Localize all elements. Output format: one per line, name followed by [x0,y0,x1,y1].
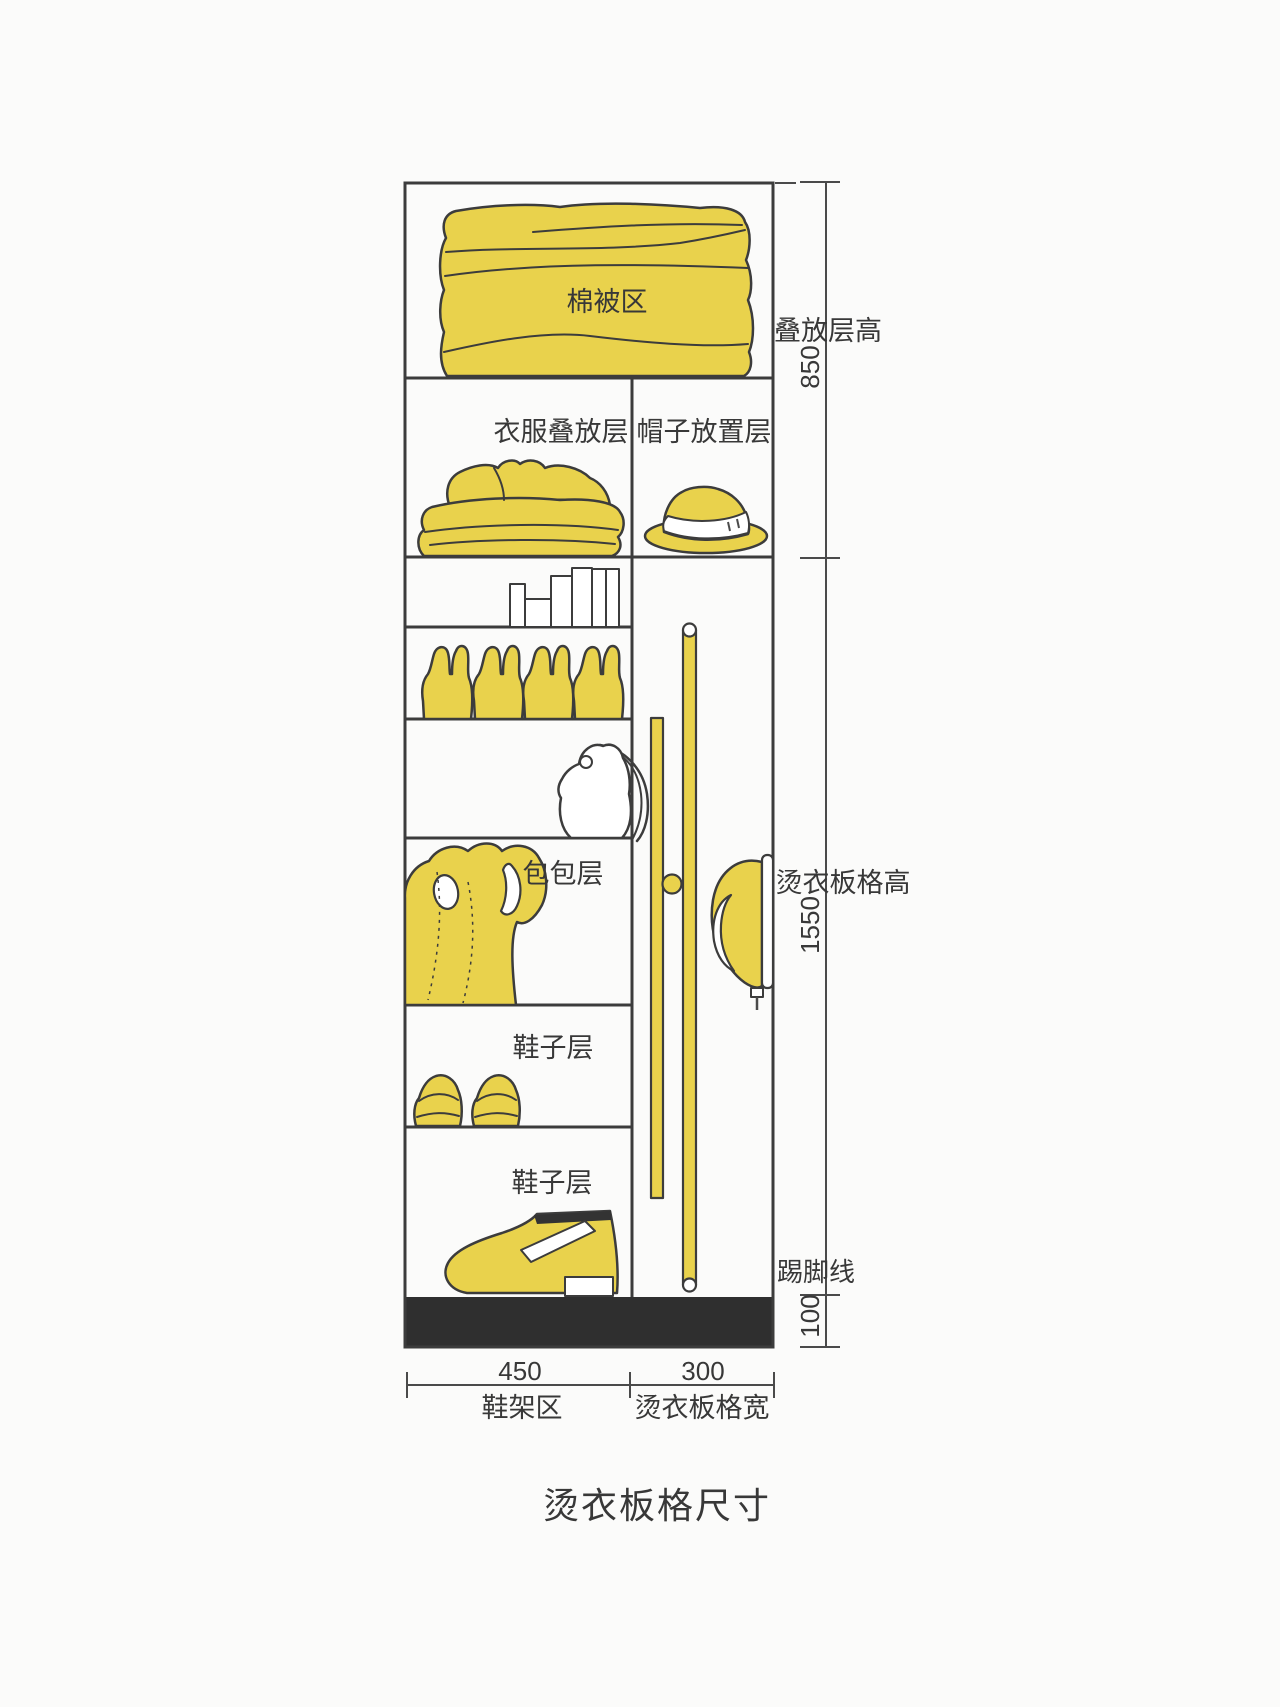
sneakers-icon [414,1075,519,1126]
leather-shoe-icon [445,1211,617,1296]
storage-boxes-icon [510,568,619,627]
dim-label-board-height: 烫衣板格高 [776,868,911,898]
diagram-svg: 棉被区 衣服叠放层 帽子放置层 包包层 鞋子层 鞋子层 叠放层高 850 烫衣板… [0,0,1280,1707]
page-title: 烫衣板格尺寸 [543,1485,771,1526]
dim-label-board-width: 烫衣板格宽 [635,1393,770,1423]
label-shoe-shelf-upper: 鞋子层 [513,1033,594,1063]
iron-plug [751,988,763,997]
hat-icon [645,487,767,553]
label-quilt-area: 棉被区 [567,287,648,317]
dim-value-300: 300 [681,1356,724,1386]
gloves-icon [422,646,623,719]
plinth-base [405,1297,773,1347]
folded-clothes-icon [418,461,623,556]
wardrobe-dimension-diagram: 棉被区 衣服叠放层 帽子放置层 包包层 鞋子层 鞋子层 叠放层高 850 烫衣板… [0,0,1280,1707]
dim-value-850: 850 [795,345,825,388]
dim-label-shoe-rack: 鞋架区 [482,1393,563,1423]
iron-icon [712,855,773,1010]
label-clothes-stack: 衣服叠放层 [494,417,629,447]
dim-label-skirting: 踢脚线 [777,1257,855,1287]
label-bag-shelf: 包包层 [523,859,604,889]
dim-value-450: 450 [498,1356,541,1386]
dim-value-1550: 1550 [795,896,825,954]
dim-label-stack-height: 叠放层高 [774,316,882,346]
label-hat-shelf: 帽子放置层 [637,417,772,447]
label-shoe-shelf-lower: 鞋子层 [512,1168,593,1198]
handbag-icon [558,745,647,841]
dim-value-100: 100 [795,1294,825,1337]
board-knob [663,875,682,894]
ironing-board-icon [651,624,696,1292]
